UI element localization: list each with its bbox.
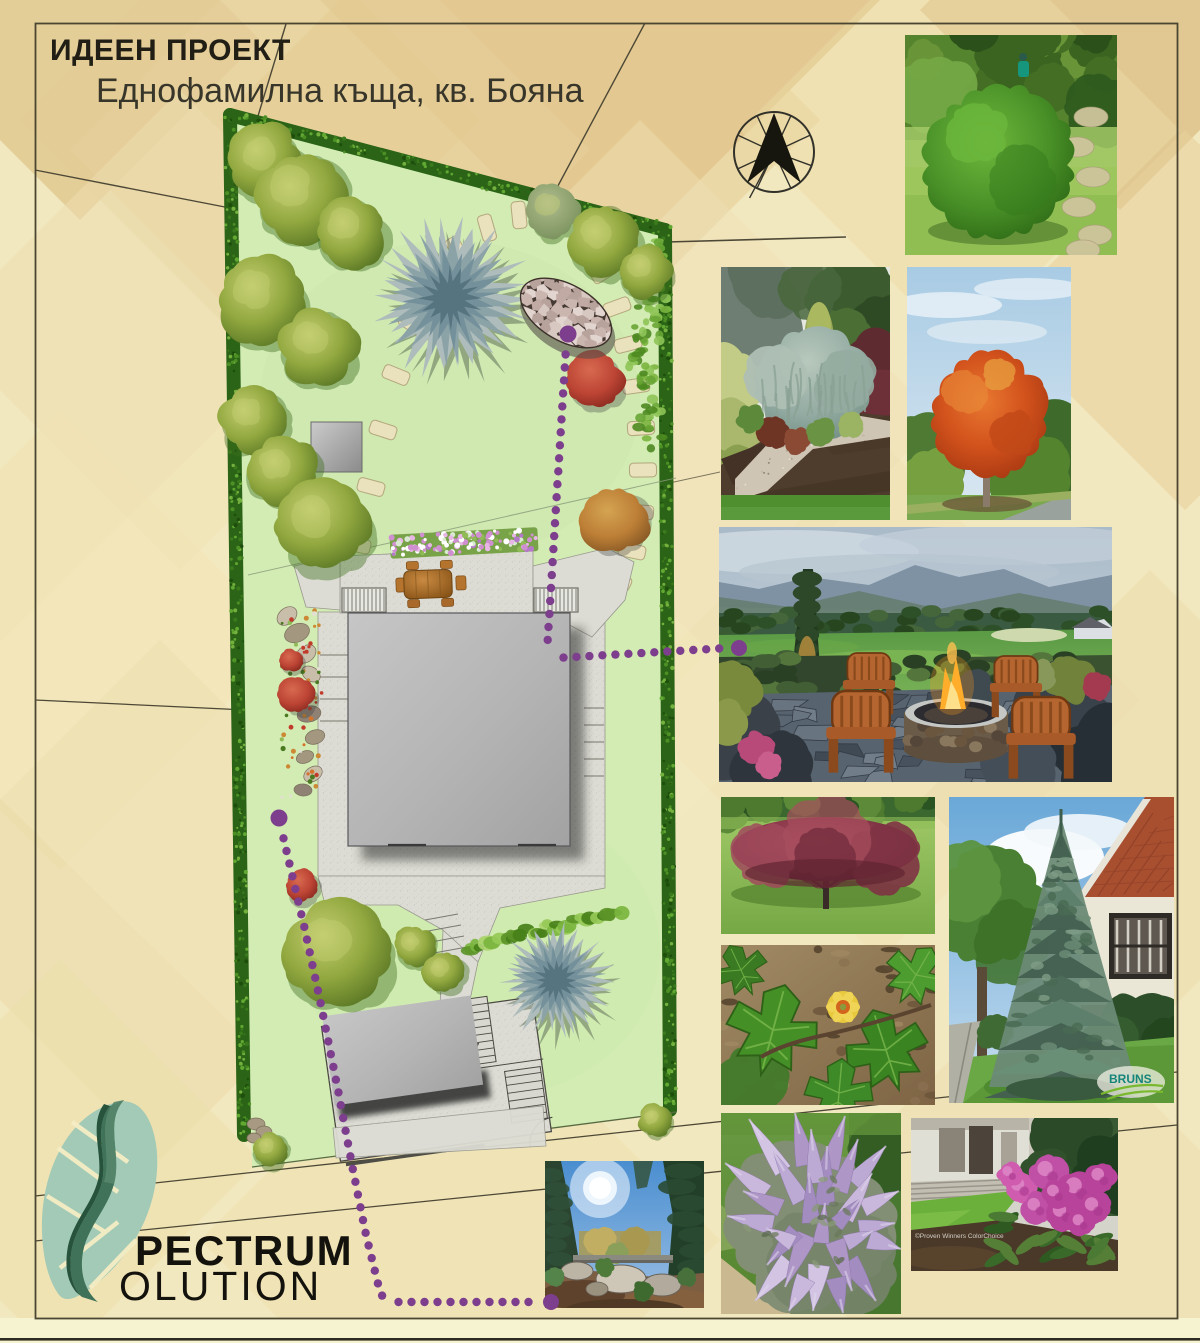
svg-text:©Proven Winners ColorChoice: ©Proven Winners ColorChoice xyxy=(915,1232,1004,1240)
svg-text:OLUTION: OLUTION xyxy=(119,1263,322,1309)
svg-text:ИДЕЕН ПРОЕКТ: ИДЕЕН ПРОЕКТ xyxy=(50,34,291,67)
svg-text:Еднофамилна къща, кв. Бояна: Еднофамилна къща, кв. Бояна xyxy=(96,72,584,110)
svg-text:BRUNS: BRUNS xyxy=(1109,1072,1152,1086)
